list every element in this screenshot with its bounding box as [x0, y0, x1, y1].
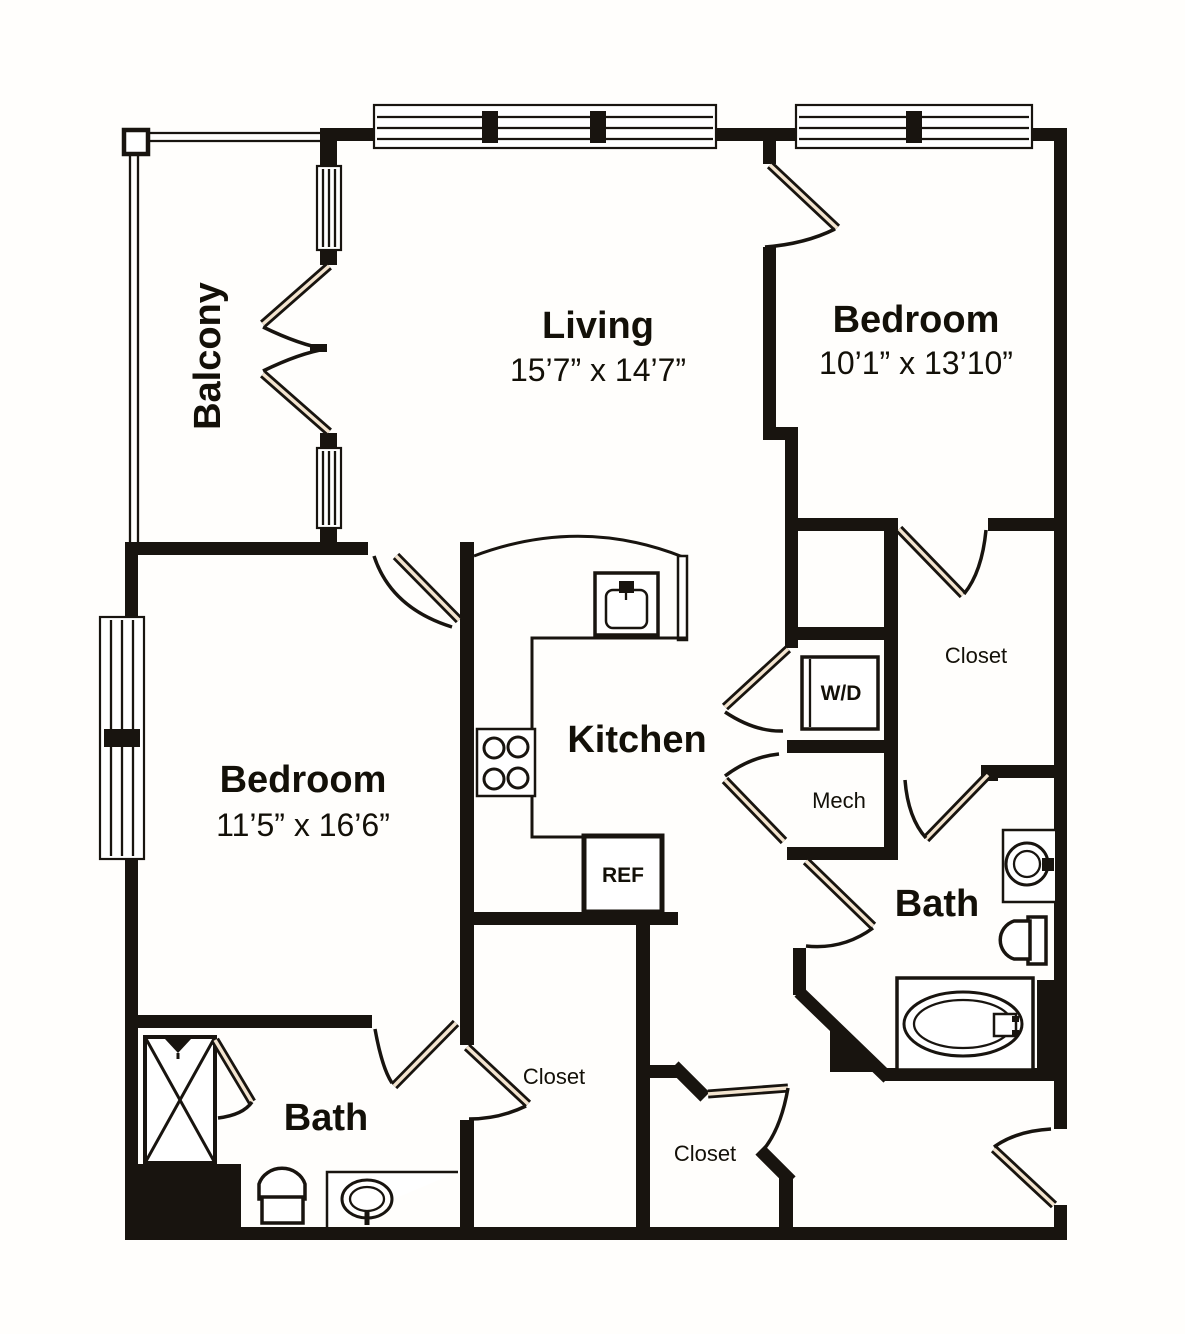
door-swing-icon-bedroom-left: [374, 556, 459, 627]
toilet-icon-left: [259, 1168, 305, 1223]
door-swing-icon-bath-right-hall: [806, 861, 873, 947]
vanity-sink-icon-right: [1003, 830, 1055, 902]
wall-segment: [1054, 128, 1067, 1129]
appliance-label-wd: W/D: [821, 682, 862, 705]
balcony-railing-icon: [148, 133, 322, 141]
floor-plan-page: Balcony: [0, 0, 1185, 1334]
wall-segment: [127, 1164, 241, 1237]
shower-icon: [145, 1037, 252, 1163]
wall-segment: [125, 1227, 1060, 1240]
room-label-bath-right: Bath: [895, 883, 979, 925]
room-label-kitchen: Kitchen: [567, 719, 706, 761]
door-swing-icon-closet-bottom: [708, 1088, 788, 1149]
balcony-post: [124, 130, 148, 154]
wall-segment: [988, 518, 1067, 531]
room-label-mech: Mech: [812, 788, 866, 813]
window-icon-bedroom-left: [100, 617, 144, 859]
kitchen-counter-edge: [474, 536, 683, 557]
wall-segment: [320, 128, 337, 168]
wall-segment: [460, 1120, 474, 1240]
door-swing-icon-mech: [725, 754, 784, 841]
wall-segment: [125, 1015, 372, 1028]
wall-segment: [785, 518, 898, 531]
room-label-bedroom-left: Bedroom: [220, 759, 387, 801]
room-label-closet-left: Closet: [523, 1064, 585, 1089]
window-icon-living: [374, 105, 716, 148]
wall-segment: [787, 627, 898, 640]
room-label-closet-right: Closet: [945, 643, 1007, 668]
room-label-living: Living: [542, 305, 654, 347]
door-swing-icon-entry: [994, 1129, 1054, 1205]
wall-segment: [320, 250, 337, 265]
room-label-bath-left: Bath: [284, 1097, 368, 1139]
wall-segment: [460, 542, 474, 1045]
room-label-closet-bottom: Closet: [674, 1141, 736, 1166]
window-icon-balcony-sidelight-lower: [317, 448, 341, 528]
door-swing-icon-closet-right: [899, 529, 986, 595]
wall-segment: [785, 427, 798, 648]
vanity-sink-icon-left: [327, 1172, 458, 1227]
wall-segment: [884, 531, 898, 860]
wall-segment: [674, 1066, 705, 1097]
door-swing-icon-bath-right-closet: [905, 775, 988, 839]
wall-segment: [763, 128, 776, 164]
bath-right-fixtures: [897, 830, 1055, 1070]
kitchen-sink-icon: [595, 573, 658, 635]
room-label-balcony: Balcony: [187, 282, 229, 430]
window-icon-balcony-sidelight-upper: [317, 166, 341, 250]
wall-segment: [320, 433, 337, 448]
wall-segment: [712, 128, 798, 141]
refrigerator-icon: REF: [584, 836, 662, 912]
bathtub-icon: [897, 978, 1033, 1070]
appliance-label-ref: REF: [602, 864, 644, 887]
washer-dryer-icon: W/D: [802, 657, 878, 729]
wall-segment: [1037, 980, 1058, 1078]
window-icon-bedroom-right: [796, 105, 1032, 148]
kitchen-counter-end: [678, 556, 687, 640]
wall-segment: [787, 740, 898, 753]
walls: [125, 128, 1067, 1240]
room-label-bedroom-right: Bedroom: [833, 299, 1000, 341]
toilet-icon-right: [1000, 917, 1046, 964]
balcony: Balcony: [124, 130, 322, 542]
wall-segment: [760, 1150, 791, 1181]
room-dims-bedroom-right: 10’1” x 13’10”: [819, 345, 1013, 381]
door-swing-icon-washer-dryer: [725, 649, 788, 731]
door-swing-icon-closet-left: [467, 1047, 528, 1119]
wall-segment: [787, 847, 898, 860]
wall-segment: [125, 542, 368, 555]
wall-segment: [779, 1178, 793, 1227]
wall-segment: [763, 247, 776, 427]
door-swing-icon-bedroom-right: [765, 165, 837, 247]
door-swing-icon-bath-left: [375, 1023, 456, 1086]
floor-plan-drawing: Balcony: [0, 0, 1185, 1334]
balcony-railing-icon: [130, 154, 138, 542]
door-swing-icon-balcony: [263, 266, 329, 432]
cooktop-icon: [477, 729, 535, 796]
room-dims-living: 15’7” x 14’7”: [510, 352, 686, 388]
room-dims-bedroom-left: 11’5” x 16’6”: [216, 807, 390, 843]
